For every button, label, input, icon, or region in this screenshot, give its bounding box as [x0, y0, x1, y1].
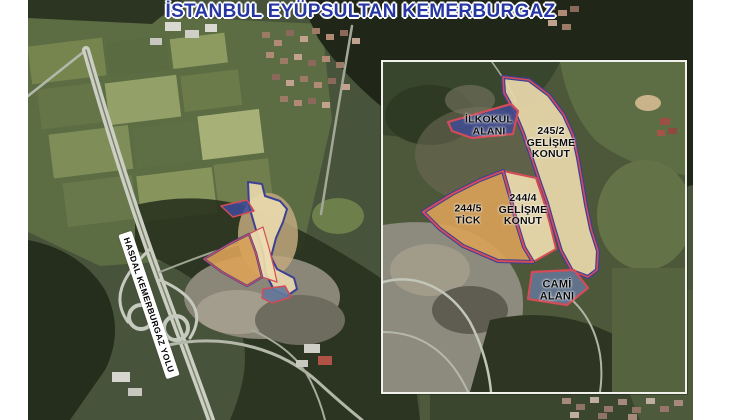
- label-cami-alani: CAMİ ALANI: [540, 280, 575, 303]
- label-ilkokul-alani: İLKOKUL ALANI: [465, 115, 513, 138]
- map-title: İSTANBUL EYÜPSULTAN KEMERBURGAZ: [28, 1, 693, 23]
- label-245-2-gelisme-konut: 245/2 GELİŞME KONUT: [527, 126, 576, 161]
- label-244-4-gelisme-konut: 244/4 GELİŞME KONUT: [499, 193, 548, 228]
- map-page: İSTANBUL EYÜPSULTAN KEMERBURGAZ HASDAL K…: [0, 0, 730, 420]
- label-244-5-tick: 244/5 TİCK: [454, 204, 481, 227]
